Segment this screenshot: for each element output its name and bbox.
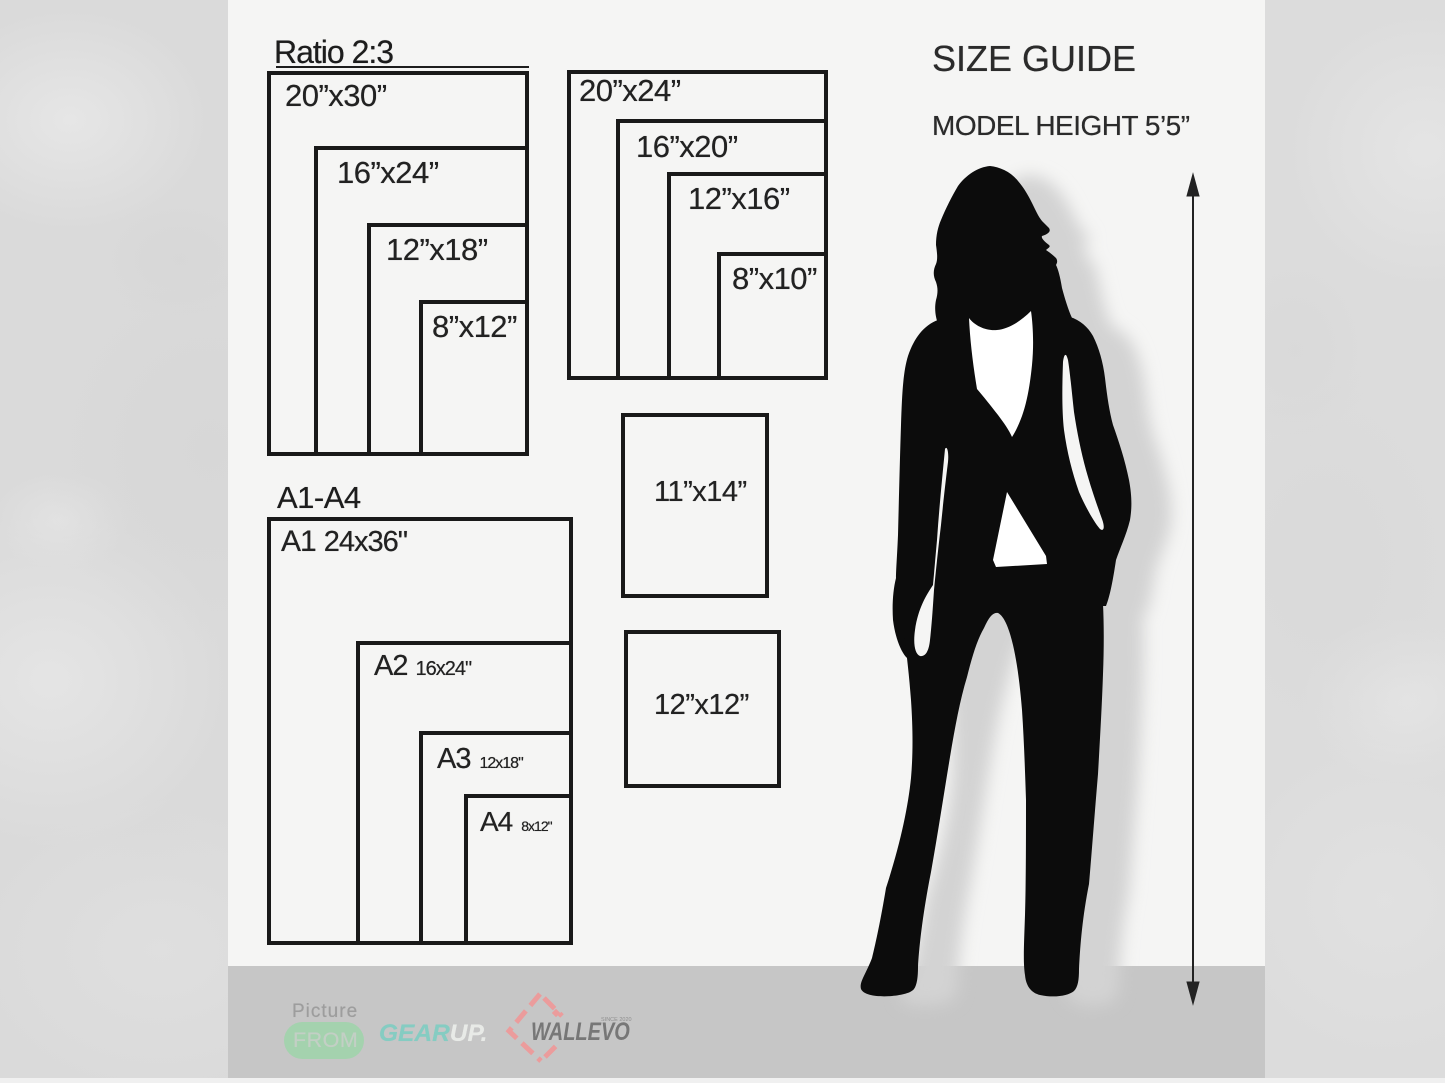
svg-text:WALLEVO: WALLEVO (531, 1018, 630, 1046)
